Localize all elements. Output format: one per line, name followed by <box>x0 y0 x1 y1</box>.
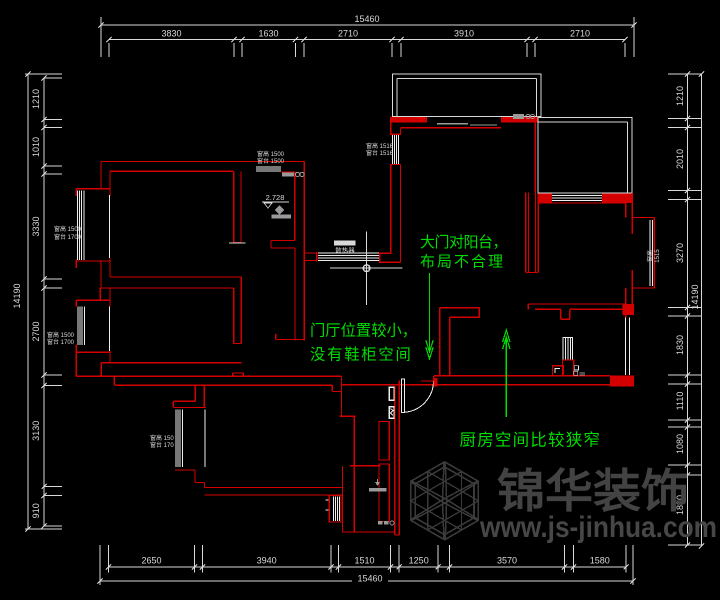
svg-text:3830: 3830 <box>161 29 181 39</box>
svg-text:2650: 2650 <box>141 556 161 566</box>
svg-text:门厅位置较小，: 门厅位置较小， <box>310 322 417 340</box>
svg-text:910: 910 <box>31 503 41 518</box>
svg-text:14190: 14190 <box>12 283 22 308</box>
svg-text:窗高 1500: 窗高 1500 <box>257 150 285 158</box>
svg-text:1210: 1210 <box>31 89 41 109</box>
svg-text:1210: 1210 <box>675 86 685 106</box>
svg-text:1510: 1510 <box>354 556 374 566</box>
svg-text:3130: 3130 <box>31 421 41 441</box>
svg-text:1580: 1580 <box>590 556 610 566</box>
svg-text:15460: 15460 <box>354 14 379 24</box>
svg-text:窗高 1500: 窗高 1500 <box>54 225 82 233</box>
svg-text:1830: 1830 <box>675 335 685 355</box>
svg-text:窗台 1700: 窗台 1700 <box>47 338 75 346</box>
svg-text:1080: 1080 <box>675 434 685 454</box>
svg-text:2700: 2700 <box>31 321 41 341</box>
svg-text:3940: 3940 <box>257 556 277 566</box>
svg-text:3910: 3910 <box>454 29 474 39</box>
svg-text:窗台 170: 窗台 170 <box>150 441 174 449</box>
svg-text:大门对阳台，: 大门对阳台， <box>420 234 507 251</box>
svg-text:14190: 14190 <box>690 284 700 309</box>
svg-text:1630: 1630 <box>258 29 278 39</box>
svg-text:2.728: 2.728 <box>266 193 285 202</box>
svg-text:2710: 2710 <box>570 29 590 39</box>
svg-text:1250: 1250 <box>409 556 429 566</box>
svg-text:1010: 1010 <box>31 137 41 157</box>
svg-text:3330: 3330 <box>31 216 41 236</box>
svg-text:窗台 1516: 窗台 1516 <box>366 149 394 157</box>
svg-text:锦华装饰: 锦华装饰 <box>497 465 689 517</box>
svg-text:2710: 2710 <box>338 29 358 39</box>
svg-text:窗高 1500: 窗高 1500 <box>47 331 75 339</box>
svg-text:1110: 1110 <box>675 392 685 411</box>
svg-text:散热器: 散热器 <box>335 246 355 255</box>
svg-text:窗高 1516: 窗高 1516 <box>366 142 394 150</box>
svg-text:3270: 3270 <box>675 243 685 263</box>
svg-text:3570: 3570 <box>497 556 517 566</box>
svg-text:窗台 1700: 窗台 1700 <box>54 233 82 241</box>
svg-text:窗高 150: 窗高 150 <box>150 434 174 442</box>
svg-text:布局不合理: 布局不合理 <box>420 254 505 271</box>
svg-text:窗高: 窗高 <box>646 250 654 262</box>
svg-text:厨房空间比较狭窄: 厨房空间比较狭窄 <box>460 431 602 450</box>
svg-text:2010: 2010 <box>675 149 685 169</box>
svg-text:www.js-jinhua.com: www.js-jinhua.com <box>479 511 717 544</box>
svg-text:1515: 1515 <box>655 249 661 263</box>
svg-text:15460: 15460 <box>357 574 382 584</box>
svg-text:窗台 1500: 窗台 1500 <box>257 157 285 165</box>
svg-text:没有鞋柜空间: 没有鞋柜空间 <box>310 347 413 364</box>
